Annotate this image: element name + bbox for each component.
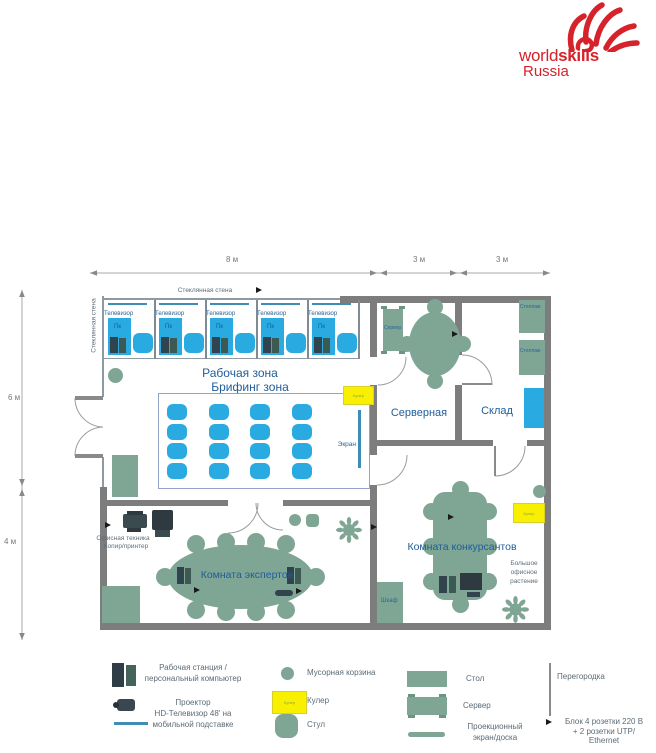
legend-tv-label: HD-Телевизор 48' на мобильной подставке	[133, 709, 253, 730]
briefing-chair	[209, 424, 229, 440]
legend-table-icon	[407, 671, 447, 687]
dim-left-upper: 6 м	[8, 393, 20, 402]
briefing-chair	[292, 463, 312, 479]
briefing-chair	[250, 443, 270, 459]
dim-top-mid: 3 м	[413, 255, 425, 264]
pc-label: Пк	[216, 324, 223, 330]
tv-label: Телевизор	[206, 311, 235, 317]
workstation-booth: Телевизор Пк	[205, 300, 258, 359]
pc-label: Пк	[318, 324, 325, 330]
pc-tower-icon	[170, 338, 177, 353]
legend-text-line: Ethernet	[556, 736, 652, 746]
legend-text-line: мобильной подставке	[133, 720, 253, 731]
logo-region: Russia	[523, 63, 569, 80]
briefing-chair	[167, 463, 187, 479]
legend-partition-icon	[549, 663, 551, 716]
chair	[235, 333, 255, 353]
server-rack-icon	[460, 573, 482, 590]
copier-icon	[127, 511, 143, 515]
legend-text-line: персональный компьютер	[133, 674, 253, 685]
pc-tower-icon	[263, 337, 271, 353]
cooler-label: Кулер	[353, 393, 364, 398]
pc-tower-icon	[110, 337, 118, 353]
briefing-chair	[292, 424, 312, 440]
glass-wall-top-label: Стеклянная стена	[160, 287, 250, 294]
pc-tower-icon	[272, 338, 279, 353]
legend-text-line: + 2 розетки UTP/	[556, 727, 652, 737]
copier-icon	[127, 528, 141, 532]
plant-label: Большое	[494, 560, 554, 567]
legend-text-line: HD-Телевизор 48' на	[133, 709, 253, 720]
socket-block-icon	[194, 587, 200, 593]
briefing-chair	[167, 424, 187, 440]
wall-mid-horizontal-right	[527, 440, 551, 446]
pc-tower-icon	[449, 576, 456, 593]
water-cooler: Кулер	[513, 503, 545, 523]
copier-icon	[123, 514, 147, 528]
screen-label: Экран	[330, 441, 356, 448]
tv-line-icon	[312, 303, 351, 305]
legend-pc-icon	[112, 663, 124, 687]
briefing-chair	[250, 463, 270, 479]
server-bump	[408, 694, 415, 697]
briefing-chair	[250, 424, 270, 440]
socket-block-icon	[452, 331, 458, 337]
pc-tower-icon	[439, 576, 447, 593]
pc-desk: Пк	[261, 318, 284, 355]
dim-left-lower: 4 м	[4, 537, 16, 546]
chair	[133, 333, 153, 353]
server-bump	[381, 351, 387, 354]
tv-label: Телевизор	[308, 311, 337, 317]
office-equipment-label: Копир/принтер	[96, 543, 156, 550]
pc-tower-icon	[119, 338, 126, 353]
legend-text-line: Блок 4 розетки 220 В	[556, 717, 652, 727]
briefing-chair	[167, 443, 187, 459]
cabinet-label: Шкаф	[381, 598, 398, 604]
server-bump	[439, 715, 446, 718]
server-bump	[381, 306, 387, 309]
briefing-zone-label: Брифинг зона	[170, 380, 330, 394]
briefing-chair	[292, 443, 312, 459]
socket-block-icon	[371, 524, 377, 530]
plant-label: офисное	[494, 569, 554, 576]
wall-center-a	[370, 300, 377, 357]
briefing-chair	[209, 463, 229, 479]
socket-block-icon	[296, 588, 302, 594]
shelf-label: Стеллаж	[520, 348, 540, 354]
legend-text-line: экран/доска	[440, 733, 550, 744]
briefing-chair	[167, 404, 187, 420]
shelf-unit	[519, 340, 545, 375]
legend-chair-icon	[275, 714, 298, 738]
legend-trash-icon	[281, 667, 294, 680]
plant-icon	[502, 596, 529, 623]
tv-line-icon	[210, 303, 249, 305]
tv-line-icon	[261, 303, 300, 305]
legend-socket-icon	[546, 719, 552, 725]
workstation-booth: Телевизор Пк	[307, 300, 360, 359]
legend-projector-icon	[113, 702, 119, 708]
chair	[337, 333, 357, 353]
tv-label: Телевизор	[155, 311, 184, 317]
projector-icon	[275, 590, 293, 596]
trash-bin	[533, 485, 546, 498]
dim-top-right: 3 м	[496, 255, 508, 264]
wall-experts-top-right	[283, 500, 377, 506]
plant-icon	[336, 517, 362, 543]
cooler-label: Кулер	[523, 511, 534, 516]
table	[102, 586, 140, 623]
pc-tower-icon	[161, 337, 169, 353]
socket-block-icon	[256, 287, 262, 293]
worldskills-hand-logo	[563, 2, 640, 52]
projection-screen	[358, 410, 361, 468]
workstation-booth: Телевизор Пк	[256, 300, 309, 359]
trash-bin	[289, 514, 301, 526]
pc-tower-icon	[221, 338, 228, 353]
workstation-booth: Телевизор Пк	[103, 300, 156, 359]
wall-mid-horizontal-left	[373, 440, 493, 446]
legend-text-line: Рабочая станция /	[133, 663, 253, 674]
wall-bottom	[100, 623, 551, 630]
briefing-chair	[250, 404, 270, 420]
tv-label: Телевизор	[257, 311, 286, 317]
competitors-room-label: Комната конкурсантов	[382, 541, 542, 553]
server-bump	[439, 694, 446, 697]
server-bump	[408, 715, 415, 718]
pc-tower-icon	[314, 337, 322, 353]
server-room-table	[409, 312, 461, 376]
legend-table-label: Стол	[466, 674, 484, 685]
chair	[184, 333, 204, 353]
plant-label: растение	[494, 578, 554, 585]
legend-socket-label: Блок 4 розетки 220 В + 2 розетки UTP/ Et…	[556, 717, 652, 746]
legend-chair-label: Стул	[307, 720, 325, 731]
legend-server-label: Сервер	[463, 701, 491, 712]
briefing-chair	[209, 443, 229, 459]
legend-workstation-label: Рабочая станция / персональный компьютер	[133, 663, 253, 684]
table	[112, 455, 138, 497]
server-bump	[399, 306, 405, 309]
legend-screen-icon	[408, 732, 445, 737]
socket-block-icon	[448, 514, 454, 520]
pc-desk: Пк	[210, 318, 233, 355]
pc-desk: Пк	[312, 318, 335, 355]
projector-icon	[467, 592, 480, 597]
tv-line-icon	[108, 303, 147, 305]
pc-label: Пк	[114, 324, 121, 330]
tv-line-icon	[159, 303, 198, 305]
server-bump	[399, 351, 405, 354]
pc-label: Пк	[267, 324, 274, 330]
legend-trash-label: Мусорная корзина	[307, 668, 375, 679]
pc-desk: Пк	[108, 318, 131, 355]
printer-icon	[155, 530, 170, 537]
work-zone-label: Рабочая зона	[160, 366, 320, 380]
glass-wall-left-label: Стеклянная стена	[91, 288, 98, 364]
tv-label: Телевизор	[104, 311, 133, 317]
office-equipment-label: Офисная техника	[93, 535, 153, 542]
trash-bin	[108, 368, 123, 383]
storage-item	[524, 388, 544, 428]
server-label: Сервер	[384, 325, 401, 331]
legend-partition-label: Перегородка	[557, 672, 605, 683]
water-cooler: Кулер	[343, 386, 374, 405]
legend-text-line: Проекционный	[440, 722, 550, 733]
wall-center-c	[370, 485, 377, 630]
experts-room-label: Комната экспертов	[167, 569, 327, 581]
legend-screen-label: Проекционный экран/доска	[440, 722, 550, 743]
doors-and-dimensions-overlay	[0, 0, 656, 753]
floor-plan-page: { "logo": { "brand_light": "world", "bra…	[0, 0, 656, 753]
briefing-chair	[209, 404, 229, 420]
legend-cooler-label: Кулер	[307, 696, 329, 707]
pc-desk: Пк	[159, 318, 182, 355]
pc-tower-icon	[212, 337, 220, 353]
legend-projector-label: Проектор	[133, 698, 253, 709]
socket-block-icon	[105, 522, 111, 528]
briefing-chair	[292, 404, 312, 420]
wall-experts-top-left	[103, 500, 228, 506]
server-room-label: Серверная	[379, 407, 459, 419]
printer-icon	[152, 510, 173, 530]
cooler-label: Кулер	[284, 700, 295, 705]
pc-label: Пк	[165, 324, 172, 330]
workstation-booth: Телевизор Пк	[154, 300, 207, 359]
dim-top-main: 8 м	[226, 255, 238, 264]
legend-server-icon	[407, 697, 447, 715]
chair	[286, 333, 306, 353]
legend-cooler-icon: Кулер	[272, 691, 307, 714]
storage-label: Склад	[467, 405, 527, 417]
shelf-label: Стеллаж	[520, 304, 540, 310]
stool	[306, 514, 319, 527]
pc-tower-icon	[323, 338, 330, 353]
glass-wall-left-lower	[102, 457, 104, 487]
